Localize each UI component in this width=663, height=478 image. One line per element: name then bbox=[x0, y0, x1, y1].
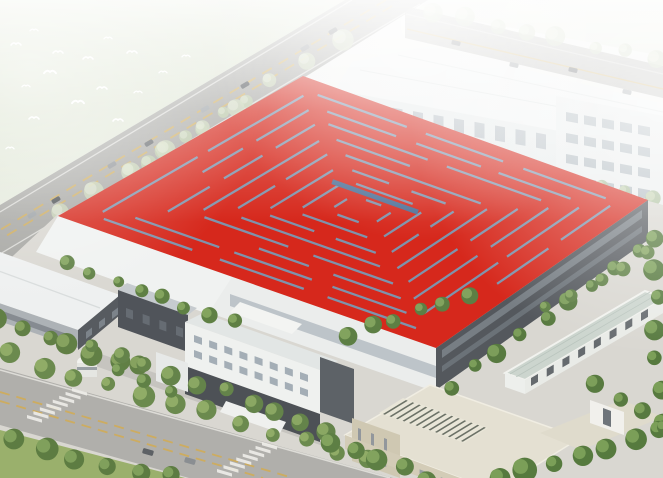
atmospheric-haze bbox=[0, 0, 663, 478]
rendering-canvas bbox=[0, 0, 663, 478]
factory-campus-aerial-rendering bbox=[0, 0, 663, 478]
haze-top-center bbox=[0, 0, 663, 478]
